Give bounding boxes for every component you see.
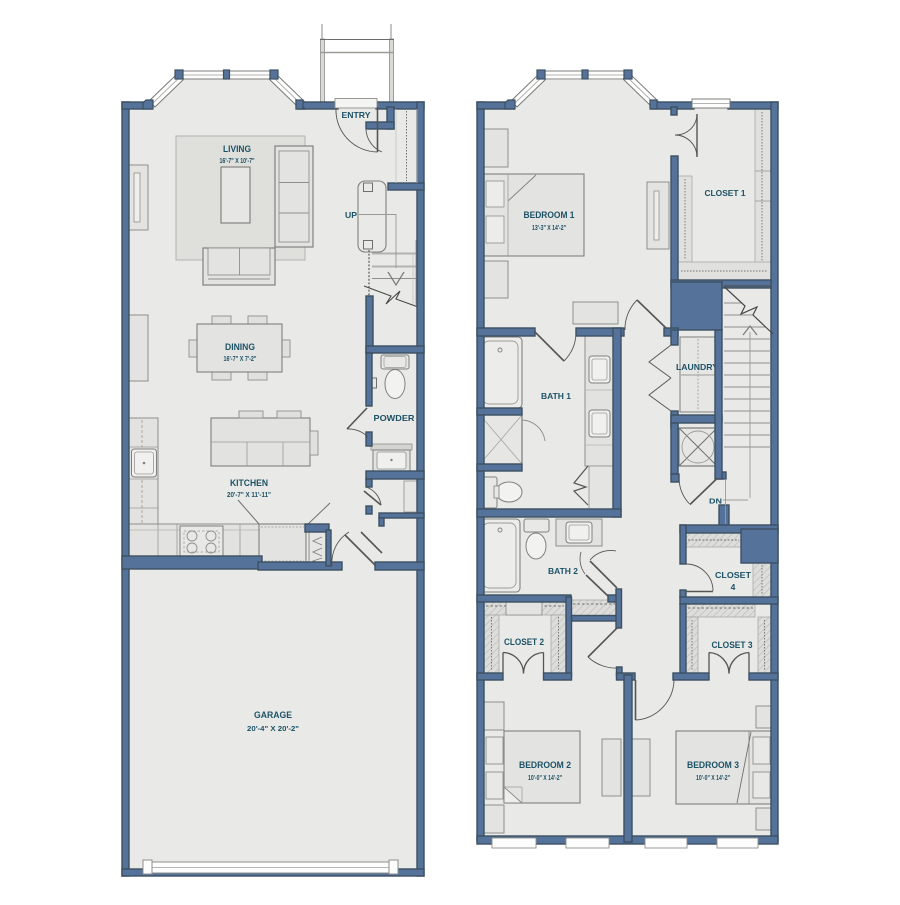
svg-text:POWDER: POWDER bbox=[374, 413, 415, 423]
svg-text:BATH 2: BATH 2 bbox=[548, 566, 578, 576]
svg-text:BEDROOM 2: BEDROOM 2 bbox=[519, 760, 571, 771]
svg-text:BEDROOM 3: BEDROOM 3 bbox=[687, 760, 739, 771]
svg-text:13'-3" X 14'-2": 13'-3" X 14'-2" bbox=[532, 225, 566, 232]
svg-text:16'-7" X 7'-2": 16'-7" X 7'-2" bbox=[224, 356, 257, 363]
svg-text:CLOSET 1: CLOSET 1 bbox=[705, 188, 746, 198]
svg-text:CLOSET 3: CLOSET 3 bbox=[712, 640, 753, 650]
svg-text:10'-0" X 14'-2": 10'-0" X 14'-2" bbox=[696, 775, 730, 782]
svg-text:20'-4" X 20'-2": 20'-4" X 20'-2" bbox=[247, 724, 299, 733]
svg-text:BATH 1: BATH 1 bbox=[541, 391, 571, 401]
svg-text:LAUNDRY: LAUNDRY bbox=[676, 362, 718, 372]
svg-text:LIVING: LIVING bbox=[223, 144, 251, 155]
svg-text:DINING: DINING bbox=[225, 342, 255, 353]
svg-text:CLOSET 2: CLOSET 2 bbox=[504, 637, 544, 647]
svg-text:CLOSET: CLOSET bbox=[715, 570, 752, 580]
svg-text:20'-7" X 11'-11": 20'-7" X 11'-11" bbox=[227, 492, 271, 499]
svg-text:KITCHEN: KITCHEN bbox=[230, 478, 268, 489]
svg-text:16'-7" X 10'-7": 16'-7" X 10'-7" bbox=[220, 158, 255, 165]
svg-text:ENTRY: ENTRY bbox=[342, 110, 371, 120]
svg-text:10'-0" X 14'-2": 10'-0" X 14'-2" bbox=[528, 775, 562, 782]
svg-text:GARAGE: GARAGE bbox=[254, 710, 292, 721]
svg-text:UP: UP bbox=[345, 210, 357, 220]
svg-text:BEDROOM 1: BEDROOM 1 bbox=[524, 210, 576, 221]
svg-text:DN: DN bbox=[709, 497, 722, 506]
svg-text:4: 4 bbox=[731, 582, 736, 592]
